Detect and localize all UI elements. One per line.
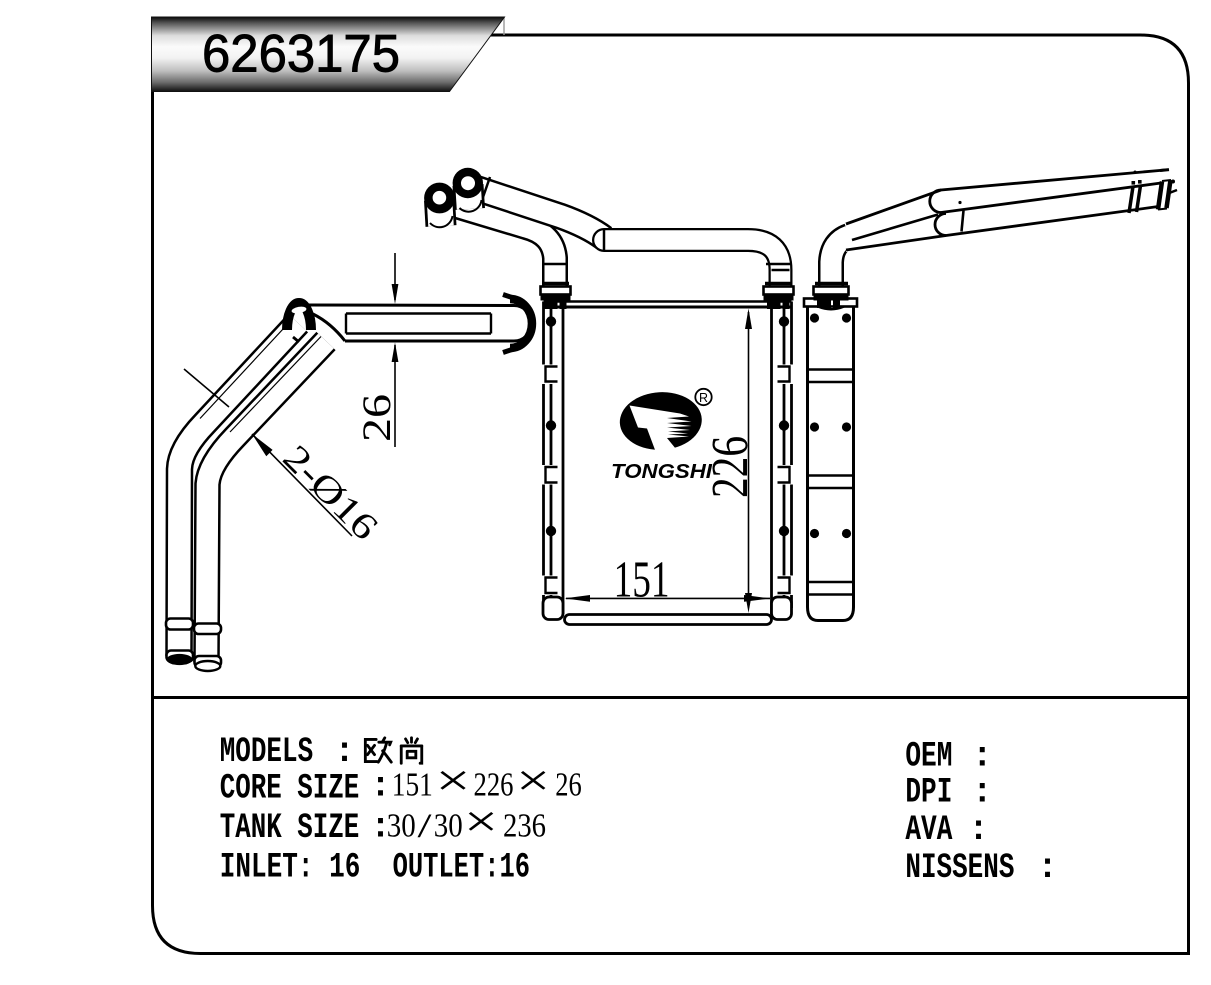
svg-text::: : [370, 767, 391, 807]
svg-text:30: 30 [387, 808, 416, 845]
svg-text:236: 236 [503, 808, 546, 845]
svg-text:/: / [418, 808, 433, 845]
svg-text:DPI: DPI [905, 773, 952, 813]
svg-text:OEM: OEM [905, 737, 952, 777]
svg-text::: : [968, 810, 989, 850]
svg-text::: : [972, 737, 993, 777]
svg-text:26: 26 [354, 394, 399, 442]
svg-text:NISSENS: NISSENS [905, 848, 1014, 888]
svg-text:TANK SIZE: TANK SIZE [220, 808, 360, 848]
svg-text:TONGSHI: TONGSHI [611, 461, 712, 483]
svg-text:151: 151 [392, 767, 433, 804]
svg-text::: : [334, 732, 355, 772]
svg-text:R: R [699, 391, 708, 405]
svg-text:CORE SIZE: CORE SIZE [220, 769, 360, 809]
svg-text:×: × [516, 755, 550, 806]
svg-text:OUTLET:16: OUTLET:16 [393, 848, 530, 888]
svg-text:AVA: AVA [905, 810, 952, 850]
svg-text:26: 26 [555, 767, 582, 804]
svg-text::: : [972, 773, 993, 813]
svg-text:×: × [464, 796, 498, 847]
svg-text::: : [1037, 848, 1058, 888]
svg-text:MODELS: MODELS [220, 732, 314, 772]
svg-text:INLET: 16: INLET: 16 [220, 848, 361, 888]
svg-text:6263175: 6263175 [202, 25, 400, 84]
svg-text:151: 151 [614, 552, 670, 609]
svg-text:30: 30 [434, 808, 463, 845]
